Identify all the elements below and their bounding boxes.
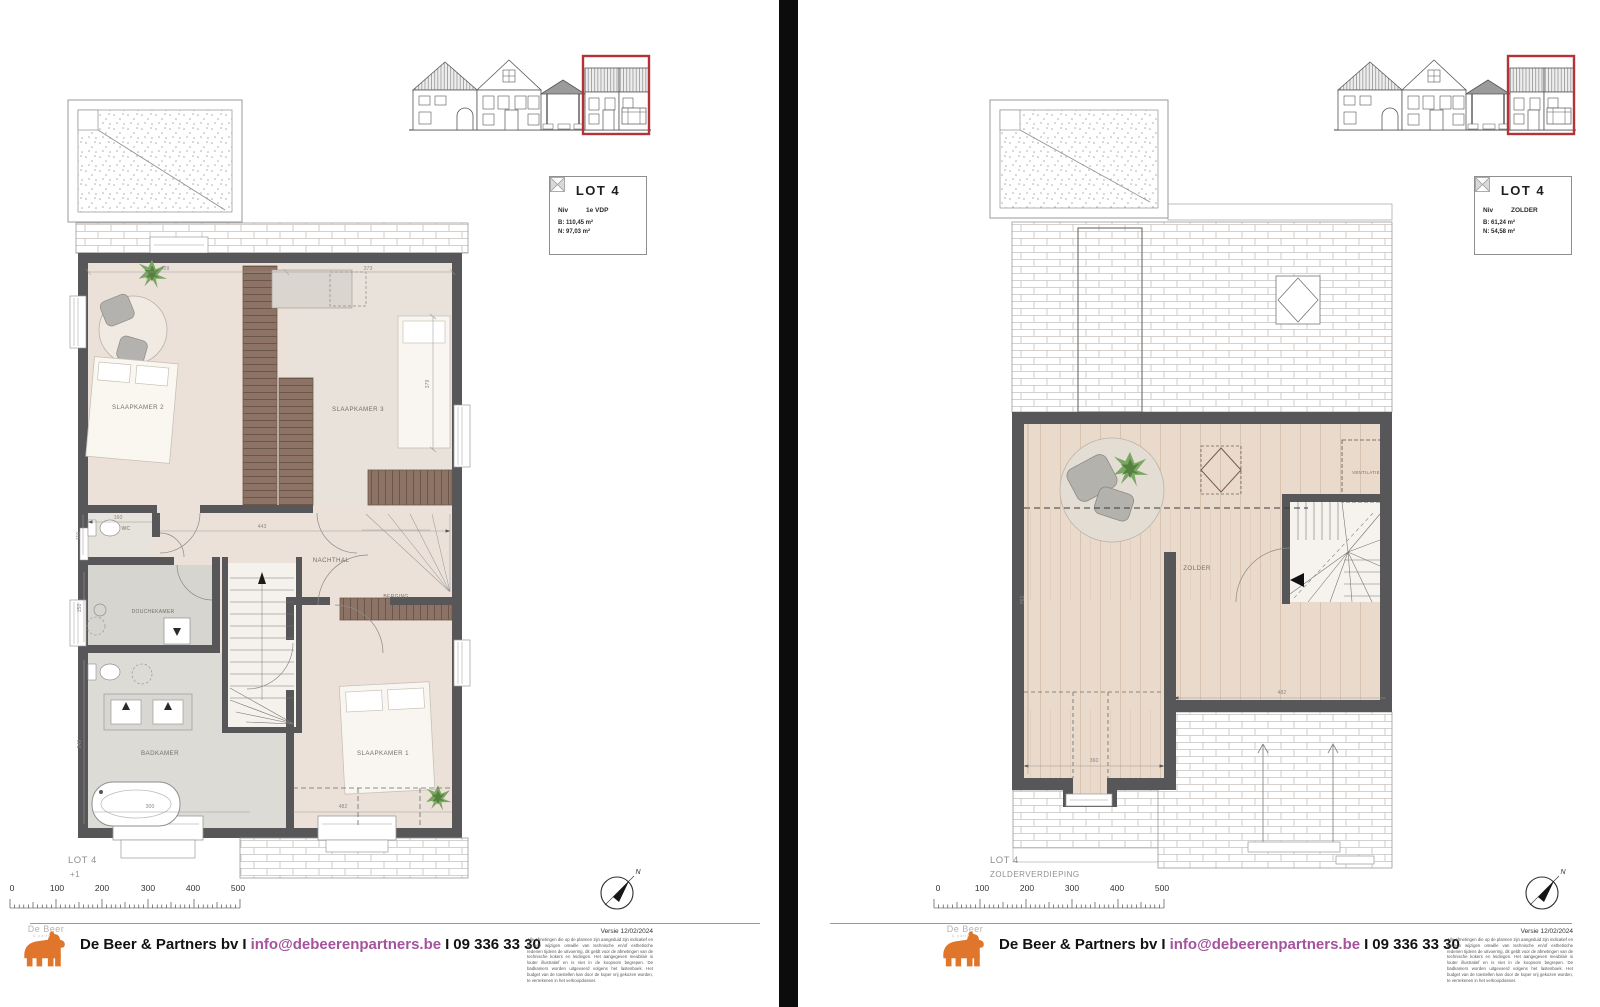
version-block-left: Versie 12/02/2024 Alle afmetingen die op… <box>527 928 653 983</box>
email-address: info@debeerenpartners.be <box>1170 936 1361 953</box>
gutter-strip <box>1168 204 1392 220</box>
plan-name-left: LOT 4 <box>68 855 97 866</box>
compass-north-left: N <box>635 869 641 876</box>
compass-right <box>1526 876 1559 909</box>
niv-value: ZOLDER <box>1511 207 1538 214</box>
room-label-berging: BERGING <box>383 594 408 600</box>
floor-plan-attic: VENTILATIE 482 360 761 ZOLDER LOT 4 ZOLD… <box>990 100 1392 879</box>
bear-logo-icon <box>14 926 72 968</box>
svg-text:300: 300 <box>141 883 155 893</box>
dim-360: 360 <box>1090 758 1099 764</box>
svg-text:100: 100 <box>975 883 989 893</box>
version-label: Versie 12/02/2024 <box>527 928 653 935</box>
dim-373: 373 <box>364 266 373 272</box>
attic-furniture <box>1060 438 1164 542</box>
dim-150: 150 <box>77 604 83 613</box>
area-gross: B: 61,24 m² <box>1483 219 1515 228</box>
svg-text:400: 400 <box>1110 883 1124 893</box>
room-label-slaapkamer3: SLAAPKAMER 3 <box>332 406 384 413</box>
company-logo-left: De Beer & partners <box>14 926 78 938</box>
sloped-roof-brick <box>1012 222 1392 412</box>
room-label-zolder: ZOLDER <box>1183 565 1211 572</box>
footer-rule-left <box>30 923 760 924</box>
svg-text:0: 0 <box>936 883 941 893</box>
dim-160: 160 <box>114 515 123 521</box>
version-block-right: Versie 12/02/2024 Alle afmetingen die op… <box>1447 928 1573 983</box>
email-address: info@debeerenpartners.be <box>251 936 442 953</box>
version-label: Versie 12/02/2024 <box>1447 928 1573 935</box>
dim-761: 761 <box>1020 596 1026 605</box>
plan-name-right: LOT 4 <box>990 855 1019 866</box>
area-gross: B: 110,45 m² <box>558 219 593 228</box>
niv-value: 1e VDP <box>586 207 608 214</box>
scale-bar-right: 0 100 200 300 400 500 <box>934 883 1169 908</box>
area-hatch-icon <box>550 177 565 192</box>
compass-north-right: N <box>1560 869 1566 876</box>
room-label-douchekamer: DOUCHEKAMER <box>132 609 175 615</box>
dim-300: 300 <box>146 804 155 810</box>
dim-443: 443 <box>258 524 267 530</box>
dim-409: 409 <box>161 266 170 272</box>
flat-roof-terrace <box>68 100 242 222</box>
flat-roof-attic <box>990 100 1168 218</box>
svg-text:200: 200 <box>1020 883 1034 893</box>
area-net: N: 54,58 m² <box>1483 228 1515 237</box>
elevation-right <box>1334 56 1576 134</box>
room-label-ventilatie: VENTILATIE <box>1352 470 1380 475</box>
room-label-slaapkamer2: SLAAPKAMER 2 <box>112 404 164 411</box>
svg-text:300: 300 <box>1065 883 1079 893</box>
compass-left <box>601 876 634 909</box>
area-net: N: 97,03 m² <box>558 228 593 237</box>
svg-text:500: 500 <box>1155 883 1169 893</box>
company-name: De Beer & Partners bv <box>999 936 1157 953</box>
floor-plan-drawing: 409 373 379 160 443 110 150 249 300 482 … <box>0 0 1600 1007</box>
niv-label: Niv <box>558 207 586 214</box>
company-name: De Beer & Partners bv <box>80 936 238 953</box>
area-hatch-icon <box>1475 177 1490 192</box>
svg-text:400: 400 <box>186 883 200 893</box>
legend-box-left: LOT 4 Niv 1e VDP B: 110,45 m² N: 97,03 m… <box>549 176 647 255</box>
dim-482-attic: 482 <box>1278 690 1287 696</box>
dim-482: 482 <box>339 804 348 810</box>
svg-text:0: 0 <box>10 883 15 893</box>
svg-text:500: 500 <box>231 883 245 893</box>
room-label-wc: WC <box>122 526 131 532</box>
lower-roof-right <box>1158 712 1392 868</box>
plan-level-left: +1 <box>70 870 80 879</box>
room-label-slaapkamer1: SLAAPKAMER 1 <box>357 750 409 757</box>
plan-level-right: ZOLDERVERDIEPING <box>990 870 1080 879</box>
room-label-nachthal: NACHTHAL <box>313 557 350 564</box>
legend-box-right: LOT 4 Niv ZOLDER B: 61,24 m² N: 54,58 m² <box>1474 176 1572 255</box>
dim-110: 110 <box>76 532 82 540</box>
dim-379: 379 <box>425 380 431 389</box>
disclaimer-text: Alle afmetingen die op de plannen zijn a… <box>1447 937 1573 983</box>
contact-line-left: De Beer & Partners bvIinfo@debeerenpartn… <box>80 936 541 953</box>
disclaimer-text: Alle afmetingen die op de plannen zijn a… <box>527 937 653 983</box>
dim-249: 249 <box>77 740 83 749</box>
elevation-left <box>409 56 651 134</box>
room-label-badkamer: BADKAMER <box>141 750 179 757</box>
scale-bar-left: 0 100 200 300 400 500 <box>10 883 246 908</box>
floor-plan-first-floor: 409 373 379 160 443 110 150 249 300 482 … <box>68 100 470 879</box>
bear-logo-icon <box>933 926 991 968</box>
company-logo-right: De Beer & partners <box>933 926 997 938</box>
contact-line-right: De Beer & Partners bvIinfo@debeerenpartn… <box>999 936 1460 953</box>
svg-text:200: 200 <box>95 883 109 893</box>
niv-label: Niv <box>1483 207 1511 214</box>
document-canvas: 409 373 379 160 443 110 150 249 300 482 … <box>0 0 1600 1007</box>
page-divider <box>779 0 798 1007</box>
facade-brick-band <box>76 223 468 253</box>
svg-text:100: 100 <box>50 883 64 893</box>
